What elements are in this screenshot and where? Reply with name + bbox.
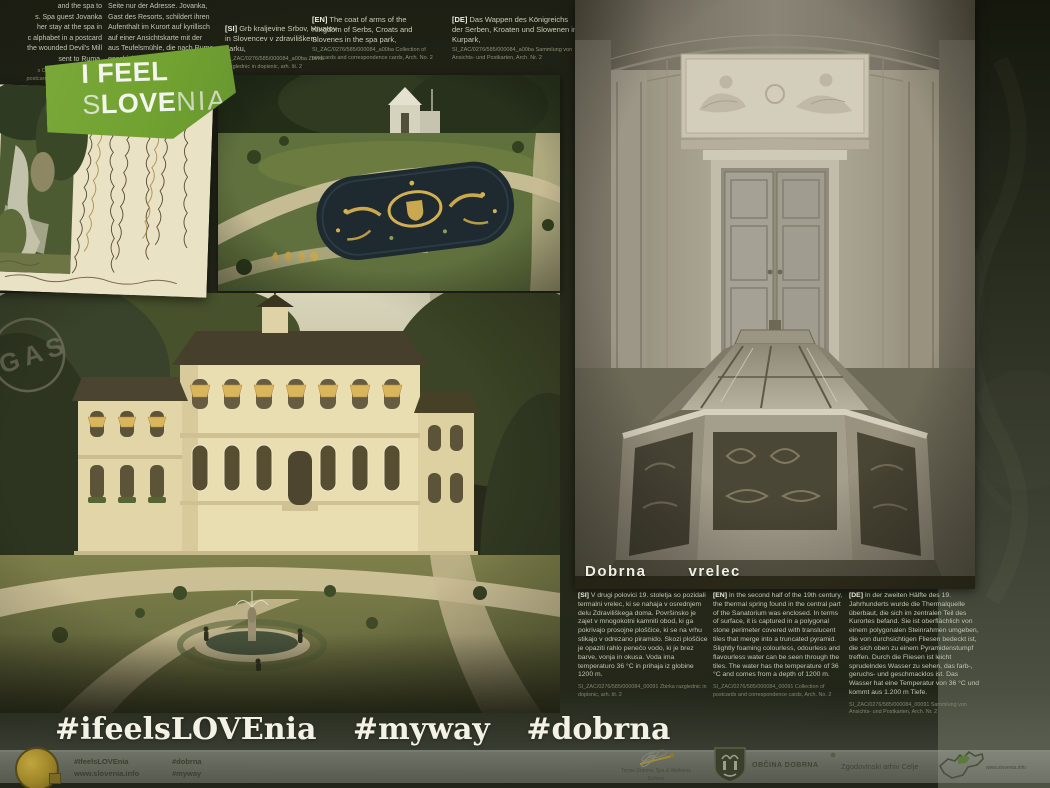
photo-title-word1: Dobrna (585, 563, 647, 580)
fragment-line: s. Spa guest Jovanka (0, 13, 102, 24)
paragraph-tag: [EN] (713, 592, 727, 599)
park-coat-of-arms-image (218, 75, 560, 291)
obcina-dobrna-label: OBČINA DOBRNA (752, 762, 819, 769)
exhibit-board: and the spa to s. Spa guest Jovanka her … (0, 0, 1050, 788)
footer-seam (0, 783, 1050, 788)
caption-text: The coat of arms of the Kingdom of Serbs… (312, 15, 412, 44)
badge-tab (49, 773, 61, 784)
caption-source: SI_ZAC/0276/585/000084_a00ba Collection … (312, 47, 434, 62)
footer-links: #IfeelsLOVEnia www.slovenia.info (74, 756, 139, 779)
paragraph-text: V drugi polovici 19. stoletja so pozidal… (578, 592, 708, 678)
hashtag-ifeelslovenia: #ifeelsLOVEnia (55, 712, 316, 747)
spring-paragraph-de: [DE] In der zweiten Hälfte des 19. Jahrh… (849, 592, 980, 717)
logo-line1: I FEEL (81, 56, 169, 90)
fragment-line: Aufenthalt im Kurort auf kyrillisch (108, 23, 236, 34)
dragonfly-icon (634, 748, 678, 770)
spring-paragraph-si: [SI] V drugi polovici 19. stoletja so po… (578, 592, 709, 699)
logo-love: LOVE (100, 87, 177, 120)
paragraph-source: SI_ZAC/0276/585/000084_00091 Collection … (713, 684, 844, 699)
paragraph-tag: [DE] (849, 592, 863, 599)
paragraph-text: In the second half of the 19th century, … (713, 592, 842, 678)
gold-badge-icon (15, 747, 61, 788)
paragraph-tag: [SI] (578, 592, 589, 599)
slovenia-map-label: www.slovenia.info (986, 765, 1026, 771)
footer-hashtags: #dobrna #myway (172, 756, 202, 779)
slovenia-map-icon (936, 746, 984, 782)
terme-caption-line1: Terme Dobrna, Spa & Wellness (596, 768, 716, 776)
fragment-line: and the spa to (0, 2, 102, 13)
caption-park-de: [DE] Das Wappen des Königreichs der Serb… (452, 15, 580, 62)
photo-title: Dobrnavrelec (585, 563, 741, 580)
fragment-line: auf einer Ansichtskarte mit der (108, 34, 236, 45)
footer-hashtag-ifeelslovenia: #IfeelsLOVEnia (74, 756, 139, 768)
hashtag-headline: #ifeelsLOVEnia #myway #dobrna (55, 712, 696, 747)
fragment-line: c alphabet in a postcard (0, 34, 102, 45)
caption-tag: [SI] (225, 24, 237, 33)
spring-pavilion-photo (575, 0, 975, 589)
caption-park-en: [EN] The coat of arms of the Kingdom of … (312, 15, 434, 62)
caption-source: SI_ZAC/0276/585/000084_a00ba Sammlung vo… (452, 47, 580, 62)
spring-paragraph-en: [EN] In the second half of the 19th cent… (713, 592, 844, 699)
caption-text: Das Wappen des Königreichs der Serben, K… (452, 15, 579, 44)
paragraph-source: SI_ZAC/0276/585/000084_00091 Zbirka razg… (578, 684, 709, 699)
hashtag-myway: #myway (353, 712, 490, 747)
historical-archive-label: Zgodovinski arhiv Celje (841, 762, 919, 771)
fragment-line: her stay at the spa in (0, 23, 102, 34)
caption-tag: [DE] (452, 15, 467, 24)
spa-building-postcard-image: GAS (0, 293, 560, 713)
photo-title-word2: vrelec (689, 563, 741, 580)
hashtag-dobrna: #dobrna (526, 712, 670, 747)
terme-caption-line2: Dobrna (596, 776, 716, 784)
footer-hashtag-myway: #myway (172, 768, 202, 780)
fragment-line: Seite nur der Adresse. Jovanka, (108, 2, 236, 13)
logo-s: S (82, 89, 102, 120)
footer-url-slovenia-info: www.slovenia.info (74, 768, 139, 780)
fragment-line: the wounded Devil's Mill (0, 44, 102, 55)
terme-dobrna-caption: Terme Dobrna, Spa & Wellness Dobrna (596, 768, 716, 783)
caption-tag: [EN] (312, 15, 327, 24)
obcina-dobrna-coat-of-arms-icon (714, 747, 746, 783)
paragraph-text: In der zweiten Hälfte des 19. Jahrhunder… (849, 592, 979, 696)
footer-hashtag-dobrna: #dobrna (172, 756, 202, 768)
historical-archive-crescent-icon (814, 749, 840, 781)
paragraph-source: SI_ZAC/0276/585/000084_00091 Sammlung vo… (849, 702, 980, 717)
fragment-line: Gast des Resorts, schildert ihren (108, 13, 236, 24)
